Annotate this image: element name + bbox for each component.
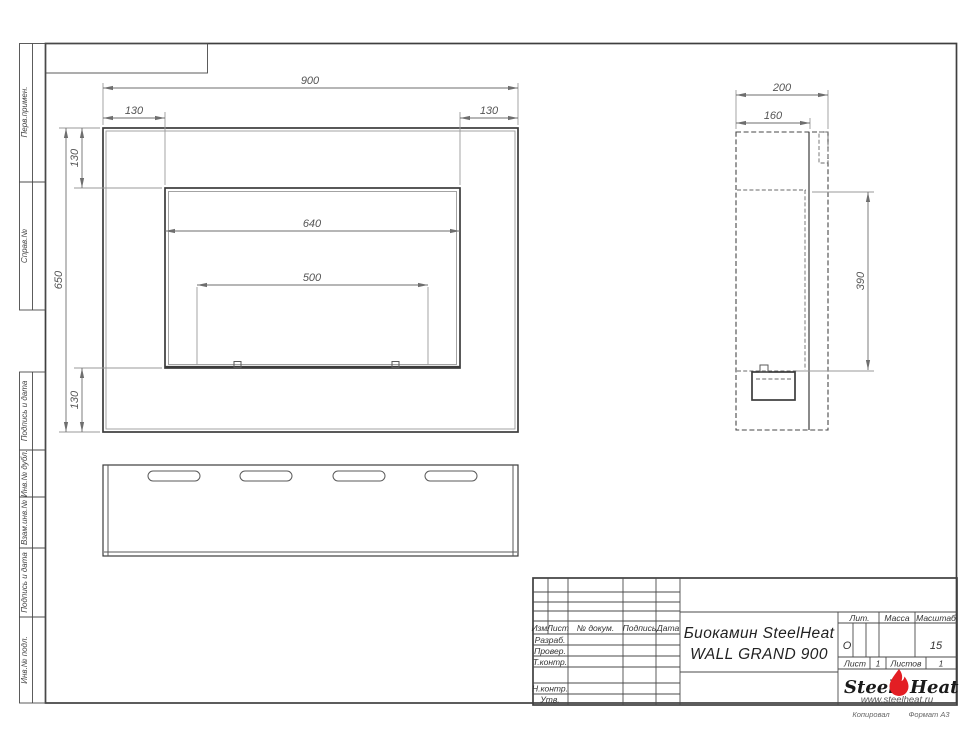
top-left-designation-box bbox=[46, 44, 208, 74]
format-label: Формат А3 bbox=[908, 710, 950, 719]
bottom-view bbox=[103, 465, 518, 556]
doc-title-line2: WALL GRAND 900 bbox=[690, 646, 828, 663]
row-prover: Провер. bbox=[534, 646, 566, 656]
side-outline bbox=[736, 132, 828, 430]
row-razrab: Разраб. bbox=[535, 635, 566, 645]
col-sign: Подпись bbox=[623, 623, 657, 633]
stamp-label: Перв.примен. bbox=[20, 87, 29, 138]
vent-slot bbox=[425, 471, 477, 481]
stamp-label: Инв.№ дубл. bbox=[20, 450, 29, 497]
steelheat-logo: Steel Heat www.steelheat.ru bbox=[844, 669, 959, 706]
row-utv: Утв. bbox=[539, 695, 559, 705]
mass-label: Масса bbox=[884, 613, 909, 623]
dim-front-top: 130 bbox=[69, 148, 81, 167]
dim-side-inner: 160 bbox=[764, 110, 783, 122]
sheet-label: Лист bbox=[843, 659, 866, 669]
row-tkontr: Т.контр. bbox=[533, 657, 567, 667]
dim-front-left: 130 bbox=[125, 105, 144, 117]
drawing-canvas: Перв.примен. Справ.№ Подпись и дата Инв.… bbox=[0, 0, 970, 749]
stamp-label: Подпись и дата bbox=[20, 552, 29, 613]
strip-outline bbox=[103, 465, 518, 556]
dim-side-depth: 200 bbox=[772, 82, 792, 94]
sheets-value: 1 bbox=[939, 659, 944, 669]
side-view bbox=[736, 132, 828, 430]
doc-title-line1: Биокамин SteelHeat bbox=[684, 625, 835, 642]
stamp-label: Подпись и дата bbox=[20, 380, 29, 441]
lit-value: О bbox=[843, 640, 852, 652]
sheet-frame bbox=[46, 44, 957, 704]
dim-side-height: 390 bbox=[855, 271, 867, 290]
col-list: Лист bbox=[546, 623, 569, 633]
mount-bracket bbox=[819, 132, 828, 163]
row-nkontr: Н.контр. bbox=[532, 684, 568, 694]
stamp-label: Взам.инв.№ bbox=[20, 500, 29, 545]
scale-value: 15 bbox=[930, 640, 943, 652]
drawing-sheet: Перв.примен. Справ.№ Подпись и дата Инв.… bbox=[0, 0, 970, 749]
dim-burner-width: 500 bbox=[303, 272, 322, 284]
vent-slot bbox=[333, 471, 385, 481]
logo-url: www.steelheat.ru bbox=[861, 695, 934, 706]
stamp-label: Инв.№ подл. bbox=[20, 636, 29, 683]
dim-front-width: 900 bbox=[301, 75, 320, 87]
col-date: Дата bbox=[656, 623, 680, 633]
stamp-label: Справ.№ bbox=[20, 229, 29, 263]
sheet-value: 1 bbox=[876, 659, 881, 669]
footer-labels: Копировал Формат А3 bbox=[852, 710, 950, 719]
col-doc: № докум. bbox=[577, 623, 614, 633]
dim-front-height: 650 bbox=[53, 270, 65, 289]
dim-front-bottom: 130 bbox=[69, 390, 81, 409]
burner-box-side bbox=[752, 372, 795, 400]
vent-slot bbox=[148, 471, 200, 481]
scale-label: Масштаб bbox=[916, 613, 957, 623]
left-stamp-column: Перв.примен. Справ.№ Подпись и дата Инв.… bbox=[20, 44, 46, 704]
vent-slot bbox=[240, 471, 292, 481]
dim-opening-width: 640 bbox=[303, 218, 322, 230]
frame-border bbox=[46, 44, 957, 704]
flame-icon bbox=[890, 669, 909, 696]
lit-label: Лит. bbox=[849, 613, 870, 623]
sheets-label: Листов bbox=[890, 659, 923, 669]
copy-label: Копировал bbox=[852, 710, 890, 719]
dim-front-right: 130 bbox=[480, 105, 499, 117]
